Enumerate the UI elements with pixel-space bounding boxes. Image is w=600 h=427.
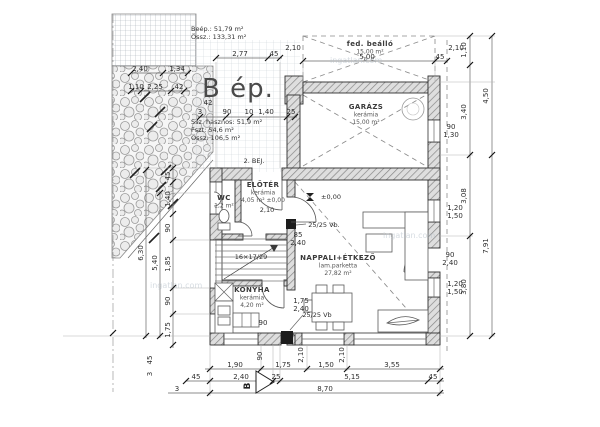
dim-label: 2,40 bbox=[442, 259, 458, 267]
dim-label: 1,40 bbox=[164, 191, 172, 207]
dim-label: 2,40 bbox=[132, 65, 148, 73]
dim-label: 1,10 bbox=[460, 42, 468, 58]
dim-label: 90 bbox=[164, 224, 172, 233]
dim-label: 1,40 bbox=[258, 108, 274, 116]
dim-label: 8,70 bbox=[317, 385, 333, 393]
room-label-eloter: ELŐTÉRkerámia4,05 m² ±0,00 bbox=[241, 180, 285, 204]
wall-east-1 bbox=[428, 76, 440, 120]
wall-east-4 bbox=[428, 272, 440, 278]
lbl-label: 2. BEJ. bbox=[244, 157, 265, 165]
lbl-label: ±0,00 bbox=[321, 193, 341, 201]
dim-label: 1,85 bbox=[164, 256, 172, 272]
stats-label: Össz.: 133,31 m² bbox=[191, 32, 247, 41]
dining-chair-2 bbox=[333, 285, 344, 293]
dim-label: 1,20 bbox=[447, 204, 463, 212]
room-label-konyha: KONYHAkerámia4,20 m² bbox=[234, 286, 270, 309]
room-label-fedett-beallo: fed. beálló15,00 m² bbox=[347, 40, 393, 56]
kitchen-sink-basin-1 bbox=[218, 306, 230, 315]
lbl-label: 25/25 Vb. bbox=[308, 221, 339, 229]
dim-label: 1,50 bbox=[447, 212, 463, 220]
dim-label: 7,91 bbox=[482, 238, 490, 254]
tree-symbol bbox=[402, 98, 424, 120]
dim-label: 90 bbox=[446, 251, 455, 259]
wall-south-2 bbox=[258, 333, 281, 345]
stats-label: Össz: 106,5 m² bbox=[191, 133, 241, 142]
wall-south-5 bbox=[426, 333, 440, 345]
building-title: B ép. bbox=[202, 74, 274, 104]
dim-tick bbox=[110, 330, 116, 336]
wall-south-4 bbox=[344, 333, 354, 345]
kitchen-sink-basin-2 bbox=[218, 317, 230, 325]
dim-label: 90 bbox=[256, 352, 264, 361]
column-leader-1 bbox=[296, 224, 306, 225]
wc-toilet bbox=[219, 210, 229, 223]
wm-label: ingatlan.com bbox=[383, 231, 435, 240]
dim-label: 90 bbox=[223, 108, 232, 116]
dim-label: 85 bbox=[294, 231, 303, 239]
stats-label: Ssz. hasznos: 51,9 m² bbox=[191, 118, 263, 126]
dim-label: 1,75 bbox=[164, 322, 172, 338]
floor-plan-page: B ép. Beép.: 51,79 m²Össz.: 133,31 m²Ssz… bbox=[0, 0, 600, 427]
section-label: B bbox=[243, 382, 253, 389]
sofa-right bbox=[405, 212, 428, 280]
stats-label: Fszt: 54,6 m² bbox=[191, 126, 234, 134]
wall-nappali-west-1 bbox=[287, 180, 295, 197]
stats-label: Beép.: 51,79 m² bbox=[191, 25, 244, 33]
wall-north-garage bbox=[303, 82, 428, 93]
wall-wc-east bbox=[235, 180, 241, 222]
dim-label: 42 bbox=[204, 99, 213, 107]
dim-label: 1,50 bbox=[318, 361, 334, 369]
dim-label: 2,10 bbox=[338, 347, 346, 363]
dim-label: 90 bbox=[164, 297, 172, 306]
dim-label: 3,40 bbox=[460, 104, 468, 120]
dim-label: 1,30 bbox=[443, 131, 459, 139]
dim-label: 2,10 bbox=[285, 44, 301, 52]
lbl-label: 16×17/29 bbox=[235, 253, 267, 261]
wall-west-1 bbox=[210, 168, 222, 182]
dim-label: 45 bbox=[164, 172, 172, 181]
dim-label: 90 bbox=[259, 319, 268, 327]
dim-label: 42 bbox=[175, 83, 184, 91]
room-label-wc: WC1,2 m² bbox=[214, 194, 234, 210]
level-marker bbox=[306, 193, 314, 201]
rc-column-2 bbox=[281, 331, 293, 344]
rc-column-1 bbox=[286, 219, 296, 229]
dining-chair-4 bbox=[333, 322, 344, 330]
dim-label: 2,40 bbox=[293, 305, 309, 313]
wall-north-house-right bbox=[282, 168, 440, 180]
wc-toilet-tank bbox=[218, 223, 230, 230]
dim-label: 2,40 bbox=[290, 239, 306, 247]
dim-label: 1,75 bbox=[275, 361, 291, 369]
dim-label: 45 bbox=[270, 50, 279, 58]
dim-label: 90 bbox=[447, 123, 456, 131]
dim-label: 25 bbox=[272, 373, 281, 381]
dim-label: 1,20 bbox=[447, 280, 463, 288]
dim-label: 1,90 bbox=[227, 361, 243, 369]
tree-symbol-inner bbox=[407, 103, 419, 115]
dim-label: 5,40 bbox=[151, 255, 159, 271]
wall-south-1 bbox=[210, 333, 224, 345]
dim-label: 25 bbox=[287, 108, 296, 116]
dim-label: 6,30 bbox=[137, 245, 145, 261]
dim-label: 45 bbox=[146, 356, 154, 365]
crosshatch-area bbox=[112, 14, 196, 66]
dim-label: 45 bbox=[192, 373, 201, 381]
wm-label: ingatlan.com bbox=[330, 56, 382, 65]
room-label-nappali-etkezo: NAPPALI+ÉTKEZŐlam.parketta27,82 m² bbox=[300, 253, 376, 277]
column-leader-2 bbox=[290, 315, 303, 330]
dim-label: 1,75 bbox=[293, 297, 309, 305]
room-label-garazs: GARÁZSkerámia15,00 m² bbox=[349, 102, 384, 126]
dim-label: 3 bbox=[175, 385, 179, 393]
lbl-label: 2,10 bbox=[260, 206, 274, 214]
dim-label: 1,50 bbox=[447, 288, 463, 296]
floor-plan-svg: B ép. Beép.: 51,79 m²Össz.: 133,31 m²Ssz… bbox=[0, 0, 600, 427]
dining-chair-3 bbox=[316, 322, 327, 330]
kitchen-lower-cabinet bbox=[233, 313, 259, 327]
dim-label: 5,15 bbox=[344, 373, 360, 381]
dim-label: 2,77 bbox=[232, 50, 248, 58]
dim-label: 2,40 bbox=[233, 373, 249, 381]
dim-label: 4,50 bbox=[482, 88, 490, 104]
dim-label: 3 bbox=[146, 372, 154, 376]
dim-label: 3,55 bbox=[384, 361, 400, 369]
dim-label: 2,10 bbox=[297, 347, 305, 363]
dining-chair-1 bbox=[316, 285, 327, 293]
dim-label: 1,34 bbox=[169, 65, 185, 73]
dim-label: 3,08 bbox=[460, 188, 468, 204]
dim-label: 2,25 bbox=[147, 83, 163, 91]
